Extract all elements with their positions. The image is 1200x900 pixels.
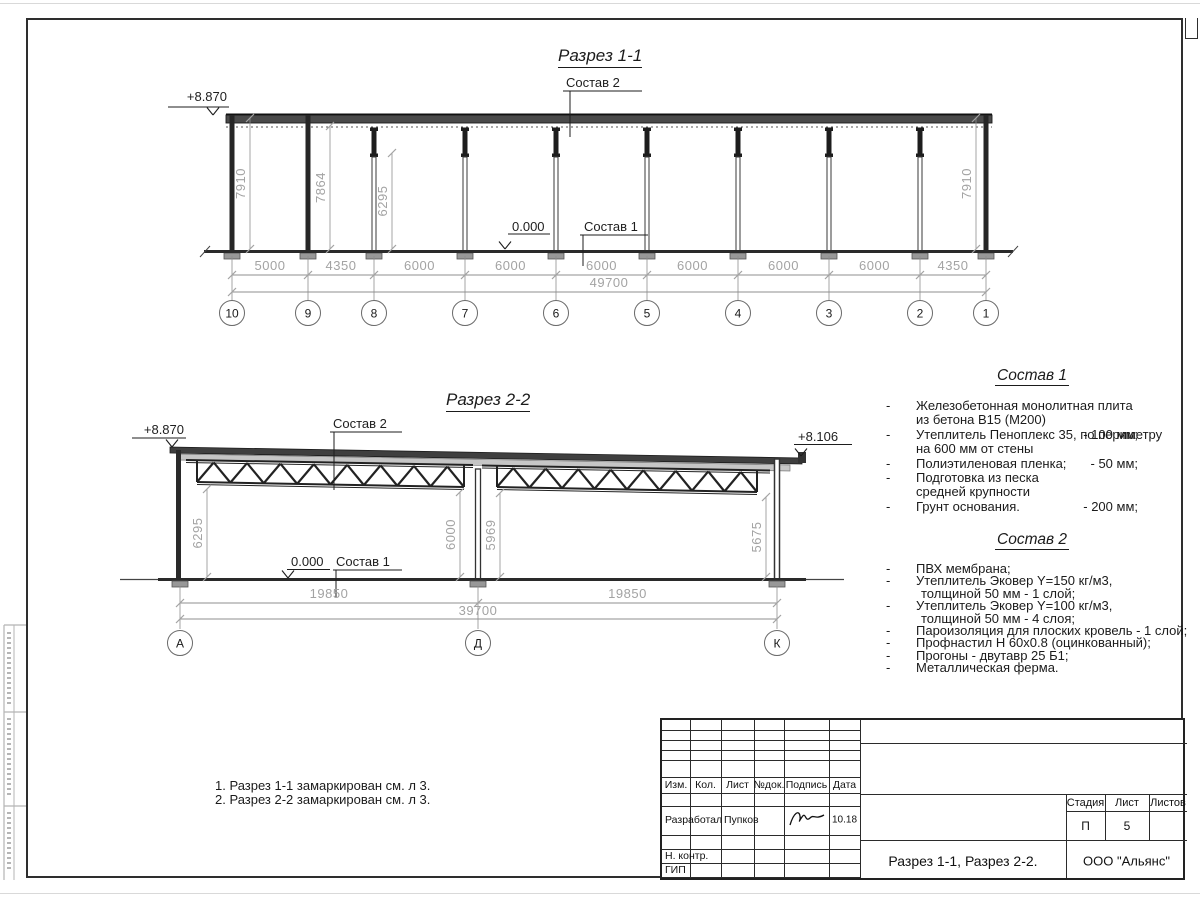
composition-text: Утеплитель Пеноплекс 35, по периметру <box>916 428 1138 442</box>
truss-diagonal <box>447 467 464 487</box>
truss-diagonal <box>513 468 529 488</box>
elevation-arrow <box>172 440 178 448</box>
truss-seat <box>552 154 560 158</box>
wall-column <box>176 450 181 580</box>
titleblock-line <box>829 720 830 878</box>
composition-line: -Утеплитель Пеноплекс 35, по периметру <box>886 428 1138 442</box>
elevation-label: +8.870 <box>144 422 184 437</box>
company-name: ООО "Альянс" <box>1083 854 1170 869</box>
column <box>918 157 922 251</box>
elevation-label: 0.000 <box>512 219 545 234</box>
signature-mark <box>786 808 828 835</box>
truss-diagonal <box>197 462 214 482</box>
ncontr-role: Н. контр. <box>665 850 708 862</box>
elevation-arrow <box>288 571 294 579</box>
dim-label-vertical: 6295 <box>190 518 205 549</box>
column <box>554 157 558 251</box>
elevation-arrow <box>282 571 288 579</box>
truss-post <box>554 129 559 155</box>
sheets-label: Листов <box>1150 797 1186 809</box>
titleblock-line <box>662 760 860 761</box>
titleblock-line <box>721 720 722 878</box>
dim-label: 19850 <box>608 586 647 601</box>
dim-label: 6000 <box>586 258 617 273</box>
dim-label: 19850 <box>310 586 349 601</box>
elevation-arrow <box>207 108 213 116</box>
titleblock-line <box>754 720 755 878</box>
note-line: 1. Разрез 1-1 замаркирован см. л 3. <box>215 779 430 793</box>
titleblock-header: №док. <box>754 779 785 791</box>
composition-line: на 600 мм от стены- 50 мм; <box>886 442 1138 456</box>
truss-diagonal <box>314 464 331 484</box>
truss-diagonal <box>247 463 264 483</box>
dim-label: 4350 <box>938 258 969 273</box>
truss-diagonal <box>676 471 692 491</box>
truss-diagonal <box>708 471 724 491</box>
dim-label: 5000 <box>255 258 286 273</box>
truss-post <box>372 129 377 155</box>
frame-side-strip <box>4 625 26 880</box>
composition-line: -Металлическая ферма. <box>886 662 1148 674</box>
dim-label-vertical: 6295 <box>375 186 390 217</box>
wall-column <box>306 115 311 251</box>
dim-total-label: 49700 <box>590 275 629 290</box>
truss-diagonal <box>660 471 676 490</box>
bullet-dash: - <box>886 428 890 442</box>
titleblock-line <box>860 743 1187 744</box>
titleblock-line <box>662 877 860 878</box>
grid-bubble-label: 2 <box>917 306 924 320</box>
dim-label: 6000 <box>404 258 435 273</box>
truss-diagonal <box>643 470 659 490</box>
truss-post <box>918 129 923 155</box>
grid-bubble-label: А <box>176 636 184 650</box>
sostav1-title: Состав 1 <box>962 367 1102 385</box>
elevation-arrow <box>499 242 505 250</box>
bullet-dash: - <box>886 500 890 514</box>
elevation-arrow <box>213 108 219 116</box>
stage-label: Стадия <box>1067 797 1105 809</box>
truss-diagonal <box>578 469 594 489</box>
titleblock-header: Подпись <box>786 779 828 791</box>
roof-slab <box>226 115 992 123</box>
truss-post <box>827 129 832 155</box>
column <box>476 469 481 580</box>
composition-text: на 600 мм от стены <box>916 442 1138 456</box>
sostav1-list: -Железобетонная монолитная плитаиз бетон… <box>886 399 1138 514</box>
truss-post <box>645 129 650 155</box>
grid-bubble-label: К <box>774 636 781 650</box>
truss-diagonal <box>397 466 414 486</box>
elevation-label: +8.870 <box>187 89 227 104</box>
titleblock-line <box>662 730 860 731</box>
column <box>463 157 467 251</box>
bullet-dash: - <box>886 471 890 485</box>
titleblock-line <box>662 863 860 864</box>
bullet-dash: - <box>886 457 890 471</box>
grid-bubble-label: 1 <box>983 306 990 320</box>
truss-diagonal <box>497 468 513 487</box>
truss-post <box>736 129 741 155</box>
truss-diagonal <box>280 464 297 484</box>
grid-bubble-label: 7 <box>462 306 469 320</box>
truss-diagonal <box>611 470 627 490</box>
composition-text: средней крупности <box>916 485 1138 499</box>
elevation-arrow <box>166 440 172 448</box>
composition-line: -Полиэтиленовая пленка; <box>886 457 1138 471</box>
truss-diagonal <box>364 465 381 485</box>
column <box>775 459 780 580</box>
truss-diagonal <box>347 465 364 485</box>
wall-column <box>984 115 989 251</box>
callout-label: Состав 2 <box>333 416 387 431</box>
dim-label-vertical: 7864 <box>313 172 328 203</box>
composition-text: Металлическая ферма. <box>916 662 1148 674</box>
truss-diagonal <box>741 472 757 492</box>
truss-diagonal <box>214 462 231 482</box>
truss-diagonal <box>627 470 643 489</box>
titleblock-header: Изм. <box>665 779 688 791</box>
truss-diagonal <box>562 469 578 488</box>
titleblock-line <box>662 793 860 794</box>
floor-slab <box>158 578 806 581</box>
titleblock-line <box>662 835 860 836</box>
dim-label-vertical: 5675 <box>749 522 764 553</box>
composition-line: -Подготовка из песка <box>886 471 1138 485</box>
dim-total-label: 39700 <box>459 603 498 618</box>
section-1-1-title: Разрез 1-1 <box>558 46 642 68</box>
note-line: 2. Разрез 2-2 замаркирован см. л 3. <box>215 793 430 807</box>
callout-label: Состав 1 <box>336 554 390 569</box>
grid-bubble-label: 4 <box>735 306 742 320</box>
truss-seat <box>461 154 469 158</box>
column <box>645 157 649 251</box>
truss-seat <box>370 154 378 158</box>
grid-bubble-label: Д <box>474 636 482 650</box>
truss-diagonal <box>595 470 611 489</box>
titleblock-line <box>784 720 785 878</box>
composition-text: Железобетонная монолитная плита <box>916 399 1138 413</box>
callout-label: Состав 1 <box>584 219 638 234</box>
truss-seat <box>734 154 742 158</box>
bullet-dash: - <box>886 600 890 612</box>
dim-label-vertical: 7910 <box>233 168 248 199</box>
section-2-2-title: Разрез 2-2 <box>446 390 530 412</box>
sostav2-list: -ПВХ мембрана;-Утеплитель Эковер Y=150 к… <box>886 563 1148 675</box>
notes: 1. Разрез 1-1 замаркирован см. л 3.2. Ра… <box>215 779 430 806</box>
drawing-sheet: +8.870Состав 20.000Состав 17910786462957… <box>0 0 1200 900</box>
composition-text: из бетона В15 (М200) <box>916 413 1138 427</box>
titleblock-line <box>1066 811 1187 812</box>
developer-name: Пупков <box>724 814 759 826</box>
truss-seat <box>643 154 651 158</box>
section-1-1-drawing: +8.870Состав 20.000Состав 17910786462957… <box>168 75 1018 326</box>
titleblock-line <box>860 794 1187 795</box>
grid-bubble-label: 10 <box>225 306 239 320</box>
dim-label: 6000 <box>859 258 890 273</box>
title-block: Изм.Кол.Лист№док.ПодписьДатаРазработалПу… <box>660 718 1185 880</box>
grid-bubble-label: 9 <box>305 306 312 320</box>
composition-line: средней крупности- 200 мм; <box>886 485 1138 499</box>
sheet-label: Лист <box>1115 797 1139 809</box>
bullet-dash: - <box>886 575 890 587</box>
dim-label-vertical: 7910 <box>959 168 974 199</box>
developer-role: Разработал <box>665 814 722 826</box>
titleblock-header: Дата <box>833 779 856 791</box>
dim-label: 4350 <box>326 258 357 273</box>
truss-diagonal <box>725 472 741 491</box>
grid-bubble-label: 3 <box>826 306 833 320</box>
dim-label-vertical: 5969 <box>483 520 498 551</box>
composition-text: Грунт основания. <box>916 500 1138 514</box>
titleblock-line <box>662 750 860 751</box>
titleblock-header: Кол. <box>695 779 716 791</box>
callout-label: Состав 2 <box>566 75 620 90</box>
truss-diagonal <box>264 464 281 484</box>
titleblock-header: Лист <box>726 779 749 791</box>
gip-role: ГИП <box>665 864 686 876</box>
floor-slab <box>204 250 1013 253</box>
doc-title: Разрез 1-1, Разрез 2-2. <box>888 853 1037 869</box>
sheet-value: 5 <box>1124 819 1131 833</box>
column <box>827 157 831 251</box>
titleblock-line <box>662 806 860 807</box>
titleblock-line <box>1105 794 1106 840</box>
elevation-label: +8.106 <box>798 429 838 444</box>
dim-label: 6000 <box>495 258 526 273</box>
truss-diagonal <box>692 471 708 490</box>
truss-diagonal <box>331 465 348 485</box>
truss-diagonal <box>297 464 314 484</box>
sostav2-title: Состав 2 <box>962 531 1102 549</box>
truss-post <box>463 129 468 155</box>
dim-label: 6000 <box>768 258 799 273</box>
dim-label: 6000 <box>677 258 708 273</box>
composition-line: из бетона В15 (М200)- 100 мм; <box>886 413 1138 427</box>
grid-bubble-label: 5 <box>644 306 651 320</box>
truss-seat <box>916 154 924 158</box>
bullet-dash: - <box>886 662 890 674</box>
composition-text: Полиэтиленовая пленка; <box>916 457 1138 471</box>
column <box>736 157 740 251</box>
titleblock-line <box>662 740 860 741</box>
titleblock-line <box>662 777 860 778</box>
truss-diagonal <box>381 465 398 485</box>
developer-date: 10.18 <box>832 815 857 826</box>
truss-diagonal <box>546 469 562 489</box>
truss-diagonal <box>414 466 431 486</box>
composition-line: -Железобетонная монолитная плита <box>886 399 1138 413</box>
elevation-label: 0.000 <box>291 554 324 569</box>
bullet-dash: - <box>886 399 890 413</box>
truss-diagonal <box>530 469 546 488</box>
truss-seat <box>825 154 833 158</box>
section-2-2-drawing: +8.870+8.1060.000Состав 2Состав 16295600… <box>120 416 852 656</box>
grid-bubble-label: 6 <box>553 306 560 320</box>
grid-bubble-label: 8 <box>371 306 378 320</box>
elevation-arrow <box>505 242 511 250</box>
composition-line: -Грунт основания. <box>886 500 1138 514</box>
stage-value: П <box>1081 819 1090 833</box>
composition-text: Подготовка из песка <box>916 471 1138 485</box>
truss-diagonal <box>431 467 448 487</box>
dim-label-vertical: 6000 <box>443 519 458 550</box>
truss-diagonal <box>230 463 247 483</box>
titleblock-line <box>860 840 1187 841</box>
